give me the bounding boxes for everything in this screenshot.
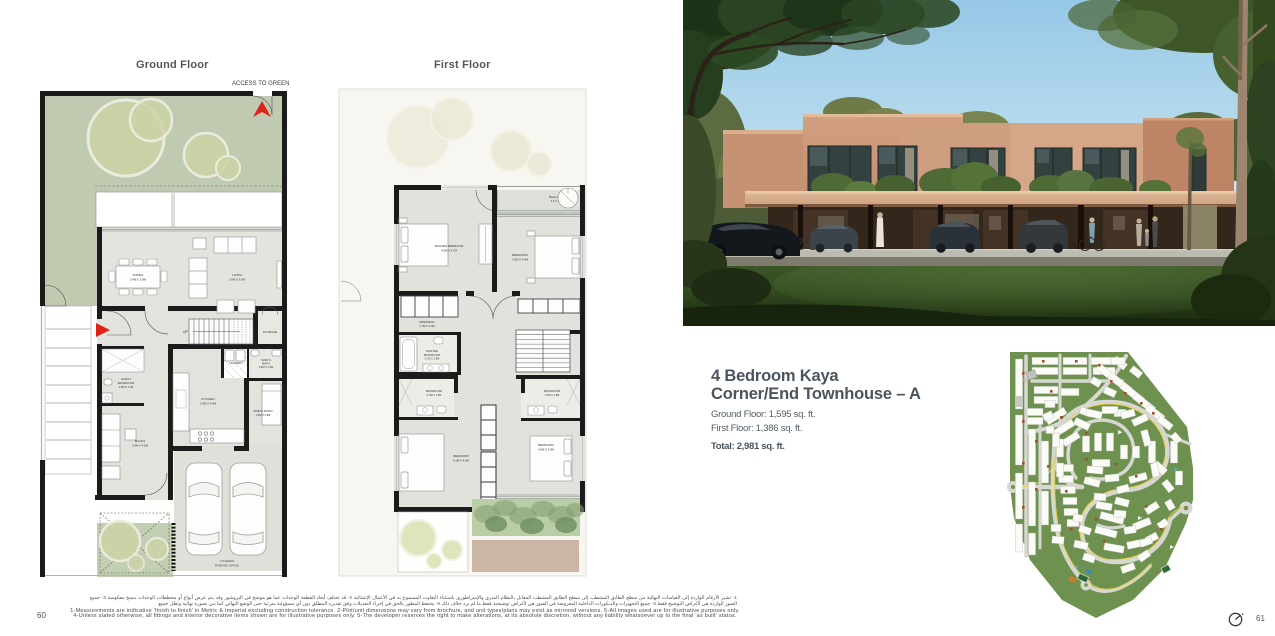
svg-text:ACCESS TO GREEN: ACCESS TO GREEN: [232, 81, 289, 87]
svg-text:STORAGE: STORAGE: [263, 330, 278, 334]
svg-text:PARKING SPACE: PARKING SPACE: [215, 564, 239, 568]
svg-text:DINING: DINING: [133, 273, 144, 277]
svg-text:BEDROOM: BEDROOM: [453, 454, 469, 458]
svg-text:1.9M X 2.1M: 1.9M X 2.1M: [119, 385, 134, 389]
svg-text:3.4M X 3.9M: 3.4M X 3.9M: [130, 278, 147, 282]
svg-text:4.1M X 4.0M: 4.1M X 4.0M: [453, 459, 470, 463]
svg-text:4.3M X 4.4M: 4.3M X 4.4M: [512, 258, 529, 262]
svg-text:5.0M X 6.0M: 5.0M X 6.0M: [229, 278, 246, 282]
svg-text:4.3M X 4.7M: 4.3M X 4.7M: [441, 249, 458, 253]
svg-text:BATHROOM: BATHROOM: [424, 353, 441, 357]
svg-text:BEDROOM: BEDROOM: [538, 443, 554, 447]
svg-text:UP: UP: [183, 330, 188, 334]
svg-text:BEDROOM: BEDROOM: [512, 253, 528, 257]
svg-text:DRESSING: DRESSING: [419, 320, 435, 324]
svg-text:COVERED: COVERED: [220, 559, 236, 563]
svg-text:BATHROOM: BATHROOM: [544, 389, 561, 393]
svg-text:MASTER BEDROOM: MASTER BEDROOM: [435, 244, 464, 248]
svg-text:BATHROOM: BATHROOM: [426, 389, 443, 393]
svg-text:2.1M X 1.9M: 2.1M X 1.9M: [545, 393, 560, 397]
svg-text:1.9M X 2.9M: 1.9M X 2.9M: [256, 413, 271, 417]
svg-text:3.4M X 4.4M: 3.4M X 4.4M: [200, 402, 217, 406]
svg-text:3.9M X 4.2M: 3.9M X 4.2M: [132, 444, 149, 448]
svg-text:2.7M X 1.9M: 2.7M X 1.9M: [427, 393, 442, 397]
svg-text:BATH: BATH: [262, 362, 269, 366]
svg-text:LAUNDRY: LAUNDRY: [229, 361, 243, 365]
svg-text:LIVING: LIVING: [232, 273, 243, 277]
svg-text:MAJLIS: MAJLIS: [135, 439, 146, 443]
svg-text:MAID’S ROOM: MAID’S ROOM: [254, 409, 274, 413]
svg-text:4.5M X 3.4M: 4.5M X 3.4M: [538, 448, 555, 452]
svg-text:BATHROOM: BATHROOM: [118, 381, 135, 385]
svg-text:2.7M X 2.0M: 2.7M X 2.0M: [419, 324, 435, 328]
svg-text:KITCHEN: KITCHEN: [201, 397, 214, 401]
svg-text:2.7M X 1.8M: 2.7M X 1.8M: [425, 357, 440, 361]
svg-text:1.9M X 1.6M: 1.9M X 1.6M: [259, 365, 274, 369]
